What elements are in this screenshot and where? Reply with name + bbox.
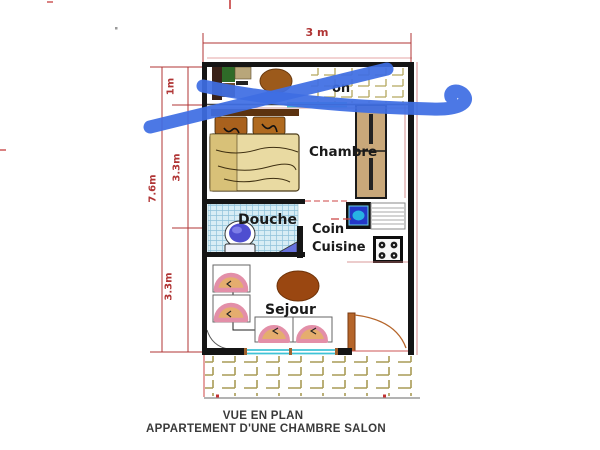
blue-x-annotation bbox=[0, 0, 600, 450]
floor-plan-page: 3 m 1m 3.3m 7.6m 3.3m on Chambre Douche … bbox=[0, 0, 600, 450]
